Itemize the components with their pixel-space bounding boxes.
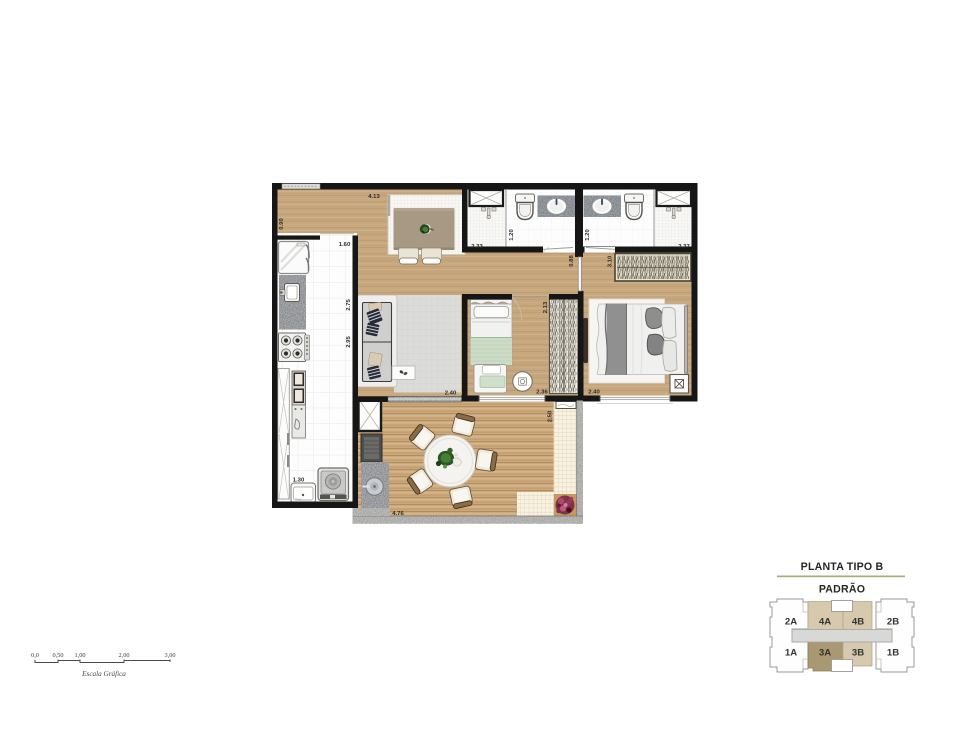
svg-text:0,50: 0,50 xyxy=(52,652,63,659)
svg-text:Escala Gráfica: Escala Gráfica xyxy=(81,670,126,678)
svg-text:1,00: 1,00 xyxy=(74,652,85,659)
svg-text:2.95: 2.95 xyxy=(346,336,352,348)
svg-text:2.40: 2.40 xyxy=(588,390,600,396)
svg-text:PADRÃO: PADRÃO xyxy=(819,583,865,596)
svg-text:2,00: 2,00 xyxy=(118,652,129,659)
svg-text:2.36: 2.36 xyxy=(536,390,548,396)
svg-text:2.37: 2.37 xyxy=(678,244,690,250)
svg-text:2.75: 2.75 xyxy=(346,299,352,311)
svg-text:2A: 2A xyxy=(785,617,797,628)
svg-text:0.90: 0.90 xyxy=(279,218,285,230)
svg-text:4.76: 4.76 xyxy=(392,511,404,517)
svg-text:1.60: 1.60 xyxy=(339,242,351,248)
svg-text:3A: 3A xyxy=(819,648,831,659)
svg-text:2.40: 2.40 xyxy=(445,391,457,397)
svg-text:2.33: 2.33 xyxy=(471,244,483,250)
svg-text:2.50: 2.50 xyxy=(548,410,554,422)
svg-text:3B: 3B xyxy=(852,648,864,659)
svg-text:PLANTA TIPO B: PLANTA TIPO B xyxy=(801,561,884,573)
svg-text:0.88: 0.88 xyxy=(569,255,575,267)
svg-text:0,0: 0,0 xyxy=(31,652,39,659)
svg-text:2B: 2B xyxy=(887,617,899,628)
svg-text:1B: 1B xyxy=(887,648,899,659)
svg-text:1.30: 1.30 xyxy=(293,478,305,484)
svg-text:2.13: 2.13 xyxy=(543,301,549,313)
svg-text:1.20: 1.20 xyxy=(509,229,515,241)
svg-text:3,00: 3,00 xyxy=(164,652,175,659)
svg-text:4.13: 4.13 xyxy=(368,194,380,200)
svg-text:4A: 4A xyxy=(819,617,831,628)
svg-text:1.20: 1.20 xyxy=(585,229,591,241)
svg-text:4B: 4B xyxy=(852,617,864,628)
svg-text:1A: 1A xyxy=(785,648,797,659)
svg-text:3.10: 3.10 xyxy=(608,255,614,267)
